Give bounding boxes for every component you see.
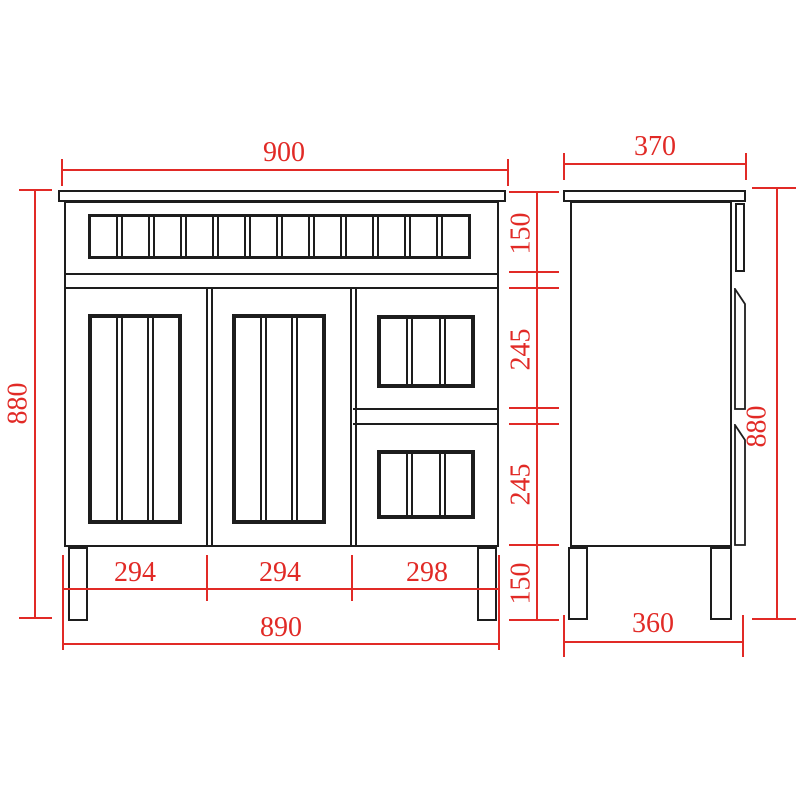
door-drawer-separator-line (350, 288, 352, 547)
dimension-tick (62, 555, 64, 650)
drawer-gap-line (353, 423, 499, 425)
dimension-tick (19, 189, 52, 191)
dimension-line (536, 191, 538, 621)
slat-cell (236, 318, 260, 520)
middle-door-panel (232, 314, 326, 524)
slat-cell (443, 217, 468, 256)
dimension-tick (563, 615, 565, 657)
slat-cell (379, 217, 404, 256)
slat-divider (148, 217, 155, 256)
slat-cell (267, 318, 291, 520)
dimension-line (564, 163, 746, 165)
slat-cell (123, 217, 148, 256)
slat-cell (411, 217, 436, 256)
slat-cell (91, 217, 116, 256)
slat-divider (340, 217, 347, 256)
drawer-gap-line (353, 408, 499, 410)
dimension-line (63, 643, 500, 645)
slat-cell (123, 318, 147, 520)
top-drawer-panel (377, 315, 475, 388)
slat-cell (413, 319, 438, 384)
door-separator-line (211, 288, 213, 547)
dim-side-width-bottom-label: 360 (613, 610, 693, 637)
dim-front-height-left-label: 880 (5, 364, 32, 444)
dimension-line (62, 169, 508, 171)
slat-cell (155, 217, 180, 256)
slat-cell (347, 217, 372, 256)
dim-top-drawer-height-label: 245 (508, 310, 535, 390)
dimension-tick (509, 287, 559, 289)
slat-divider (406, 454, 413, 515)
dimension-tick (507, 159, 509, 186)
dim-front-width-top-label: 900 (234, 139, 334, 166)
slat-divider (436, 217, 443, 256)
slat-cell (446, 454, 471, 515)
slat-divider (406, 319, 413, 384)
slat-cell (413, 454, 438, 515)
slat-cell (315, 217, 340, 256)
dimension-line (776, 188, 778, 620)
slat-cell (283, 217, 308, 256)
slat-divider (244, 217, 251, 256)
slat-divider (404, 217, 411, 256)
bottom-drawer-panel (377, 450, 475, 519)
front-fronts-top-line (64, 287, 499, 289)
slat-cell (154, 318, 178, 520)
slat-divider (147, 318, 154, 520)
slat-cell (219, 217, 244, 256)
dimension-line (564, 641, 744, 643)
dimension-tick (742, 615, 744, 657)
slat-divider (291, 318, 298, 520)
dimension-tick (19, 617, 52, 619)
left-door-panel (88, 314, 182, 524)
front-right-leg (477, 547, 497, 621)
slat-cell (92, 318, 116, 520)
dim-side-height-right-label: 880 (744, 387, 771, 467)
slat-cell (187, 217, 212, 256)
slat-divider (116, 217, 123, 256)
dimension-tick (351, 555, 353, 601)
slat-divider (308, 217, 315, 256)
dimension-tick (752, 187, 796, 189)
slat-cell (446, 319, 471, 384)
dim-front-width-bottom-label: 890 (241, 614, 321, 641)
door-drawer-separator-line (355, 288, 357, 547)
dim-leg-height-label: 150 (508, 544, 535, 624)
slat-divider (439, 319, 446, 384)
dim-bottom-drawer-height-label: 245 (508, 445, 535, 525)
slat-divider (439, 454, 446, 515)
dimension-tick (509, 407, 559, 409)
dim-left-door-width-label: 294 (95, 559, 175, 586)
side-front-rail-edge (735, 203, 745, 272)
side-front-leg (568, 547, 588, 620)
front-slat-strip (88, 214, 471, 259)
slat-divider (372, 217, 379, 256)
dimension-tick (61, 159, 63, 186)
slat-cell (298, 318, 322, 520)
slat-divider (116, 318, 123, 520)
dimension-tick (745, 153, 747, 180)
technical-drawing-canvas: 900 370 880 150 245 245 150 294 294 298 … (0, 0, 800, 800)
dimension-line (34, 190, 36, 619)
side-cabinet-body (570, 201, 732, 547)
dimension-line (63, 588, 500, 590)
dimension-tick (206, 555, 208, 601)
slat-cell (381, 319, 406, 384)
side-back-leg (710, 547, 732, 620)
front-left-leg (68, 547, 88, 621)
dimension-tick (498, 555, 500, 650)
dimension-tick (563, 153, 565, 180)
slat-cell (251, 217, 276, 256)
dim-drawer-column-width-label: 298 (387, 559, 467, 586)
front-rail-bottom-line (64, 273, 499, 275)
dim-side-width-top-label: 370 (605, 133, 705, 160)
dim-middle-door-width-label: 294 (240, 559, 320, 586)
dim-top-rail-height-label: 150 (508, 194, 535, 274)
door-separator-line (206, 288, 208, 547)
slat-cell (381, 454, 406, 515)
dimension-tick (752, 618, 796, 620)
slat-divider (260, 318, 267, 520)
dimension-tick (509, 423, 559, 425)
slat-divider (212, 217, 219, 256)
slat-divider (180, 217, 187, 256)
slat-divider (276, 217, 283, 256)
